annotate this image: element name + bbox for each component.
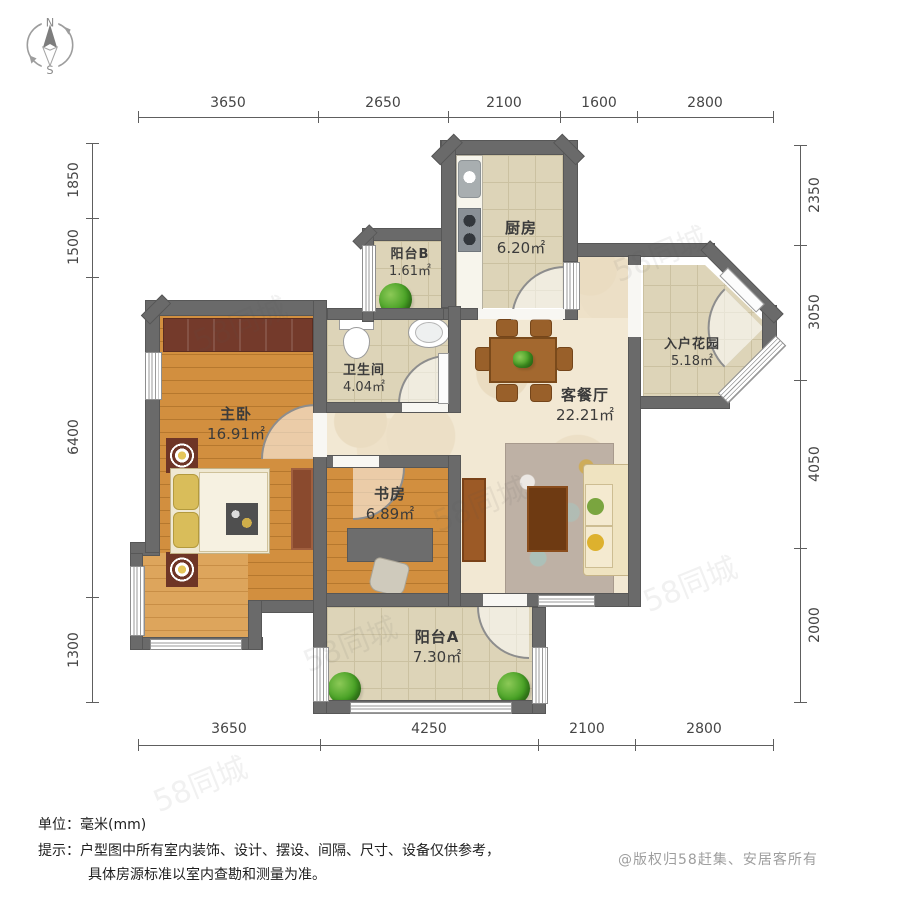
room-name: 书房 — [366, 485, 414, 505]
floorplan-canvas: N S — [0, 0, 900, 900]
dimension-tick — [138, 739, 139, 751]
room-area: 1.61㎡ — [389, 264, 431, 281]
room-label-master-bedroom: 主卧 16.91㎡ — [207, 405, 265, 444]
disclaimer-label: 提示： — [38, 843, 80, 859]
dimension-label-top: 2650 — [365, 95, 401, 111]
dimension-tick — [773, 739, 774, 751]
dining-chair — [530, 384, 552, 402]
table-plant — [513, 351, 533, 368]
wardrobe — [163, 318, 313, 352]
dimension-line-left — [92, 143, 93, 702]
coffee-table — [527, 486, 568, 552]
bedroom-cabinet — [291, 468, 313, 550]
room-area: 7.30㎡ — [413, 648, 461, 668]
window-balcony-a-right — [532, 647, 548, 704]
compass-north-label: N — [46, 15, 55, 29]
wall-lamp — [166, 552, 198, 587]
dimension-label-bottom: 2800 — [686, 721, 722, 737]
dimension-tick — [86, 702, 99, 703]
compass-rose: N S — [18, 13, 82, 77]
wall-bay-step-v — [248, 600, 262, 650]
window-bedroom-left — [145, 352, 162, 400]
disclaimer-line-1: 提示：户型图中所有室内装饰、设计、摆设、间隔、尺寸、设备仅供参考， — [38, 840, 500, 860]
dimension-label-bottom: 3650 — [211, 721, 247, 737]
disclaimer-text-1: 户型图中所有室内装饰、设计、摆设、间隔、尺寸、设备仅供参考， — [80, 843, 500, 859]
compass-south-label: S — [46, 63, 53, 77]
dimension-label-top: 2100 — [486, 95, 522, 111]
dimension-line-bottom — [138, 745, 773, 746]
bed-pillow — [173, 474, 199, 510]
door-leaf-bathroom — [438, 353, 449, 404]
dimension-label-right: 2000 — [807, 607, 823, 643]
dimension-tick — [637, 111, 638, 123]
bathroom-sink-basin — [415, 322, 443, 343]
dimension-tick — [560, 111, 561, 123]
copyright-notice: @版权归58赶集、安居客所有 — [618, 849, 818, 869]
dining-chair — [556, 347, 573, 371]
dimension-line-top — [138, 117, 773, 118]
room-name: 卫生间 — [343, 363, 385, 380]
door-opening-kitchen — [478, 309, 565, 319]
watermark-text: 58同城 — [145, 743, 253, 821]
wall-bedroom-top — [145, 300, 327, 316]
door-opening-study — [333, 456, 379, 467]
dimension-label-left: 1500 — [66, 229, 82, 265]
room-area: 16.91㎡ — [207, 425, 265, 445]
sofa-pillow-green — [587, 498, 604, 515]
dimension-label-bottom: 4250 — [411, 721, 447, 737]
room-name: 阳台A — [413, 628, 461, 648]
dimension-tick — [86, 218, 99, 219]
room-label-entry-garden: 入户花园 5.18㎡ — [664, 337, 720, 371]
dining-chair — [530, 319, 552, 337]
unit-note: 单位：毫米(mm) — [38, 814, 146, 834]
door-opening-bathroom — [402, 403, 448, 412]
kitchen-sink — [458, 160, 481, 198]
room-area: 22.21㎡ — [556, 406, 614, 426]
dimension-tick — [86, 277, 99, 278]
desk — [347, 528, 433, 562]
room-name: 厨房 — [497, 219, 545, 239]
wall-study-right — [448, 455, 461, 607]
room-label-kitchen: 厨房 6.20㎡ — [497, 219, 545, 258]
dimension-label-top: 1600 — [581, 95, 617, 111]
room-name: 入户花园 — [664, 337, 720, 354]
room-name: 阳台B — [389, 247, 431, 264]
tv-cabinet — [462, 478, 486, 562]
room-living-dining-upper — [578, 257, 628, 318]
dimension-tick — [794, 380, 807, 381]
window-balcony-a-left — [313, 647, 329, 702]
room-label-study: 书房 6.89㎡ — [366, 485, 414, 524]
window-bay-left — [130, 566, 145, 636]
dimension-label-right: 2350 — [807, 177, 823, 213]
dimension-tick — [794, 245, 807, 246]
wall-bathroom-right — [448, 306, 461, 413]
door-opening-entry-to-living — [628, 265, 641, 337]
room-area: 6.20㎡ — [497, 239, 545, 259]
room-area: 4.04㎡ — [343, 380, 385, 397]
dimension-label-right: 4050 — [807, 446, 823, 482]
room-label-balcony-a: 阳台A 7.30㎡ — [413, 628, 461, 667]
dimension-line-right — [800, 145, 801, 702]
wall-kitchen-left — [441, 140, 456, 308]
door-opening-bedroom — [313, 413, 327, 457]
bed-pillow — [173, 512, 199, 548]
window-living-bottom — [538, 595, 595, 607]
dimension-label-right: 3050 — [807, 294, 823, 330]
room-label-balcony-b: 阳台B 1.61㎡ — [389, 247, 431, 281]
dimension-label-left: 1300 — [66, 632, 82, 668]
room-name: 主卧 — [207, 405, 265, 425]
dimension-tick — [448, 111, 449, 123]
room-label-bathroom: 卫生间 4.04㎡ — [343, 363, 385, 397]
room-area: 6.89㎡ — [366, 505, 414, 525]
window-balcony-b-left — [362, 245, 376, 312]
window-bay-bottom — [150, 639, 242, 650]
wall-bathroom-top — [327, 308, 461, 320]
dimension-tick — [86, 597, 99, 598]
watermark-text: 58同城 — [635, 543, 743, 621]
dimension-label-bottom: 2100 — [569, 721, 605, 737]
room-label-living-dining: 客餐厅 22.21㎡ — [556, 386, 614, 425]
window-kitchen-right — [563, 262, 580, 310]
dimension-tick — [538, 739, 539, 751]
wall-bedroom-left — [145, 300, 160, 553]
dimension-tick — [794, 145, 807, 146]
sofa-pillow-yellow — [587, 534, 604, 551]
dimension-label-top: 3650 — [210, 95, 246, 111]
bed-tray — [226, 503, 258, 535]
dimension-tick — [320, 739, 321, 751]
dimension-label-left: 1850 — [66, 162, 82, 198]
window-balcony-a-bottom — [350, 702, 512, 714]
dimension-label-left: 6400 — [66, 419, 82, 455]
dimension-tick — [318, 111, 319, 123]
dining-chair — [496, 319, 518, 337]
dimension-tick — [138, 111, 139, 123]
dimension-tick — [86, 143, 99, 144]
wall-entry-bottom — [636, 396, 730, 409]
hallway — [327, 413, 461, 455]
disclaimer-line-2: 具体房源标准以室内查勘和测量为准。 — [88, 864, 326, 884]
dimension-tick — [635, 739, 636, 751]
dining-chair — [496, 384, 518, 402]
dimension-label-top: 2800 — [687, 95, 723, 111]
stove — [458, 208, 481, 252]
dimension-tick — [773, 111, 774, 123]
room-name: 客餐厅 — [556, 386, 614, 406]
room-area: 5.18㎡ — [664, 354, 720, 371]
dimension-tick — [794, 702, 807, 703]
door-opening-balcony-a — [483, 594, 527, 606]
dimension-tick — [794, 548, 807, 549]
